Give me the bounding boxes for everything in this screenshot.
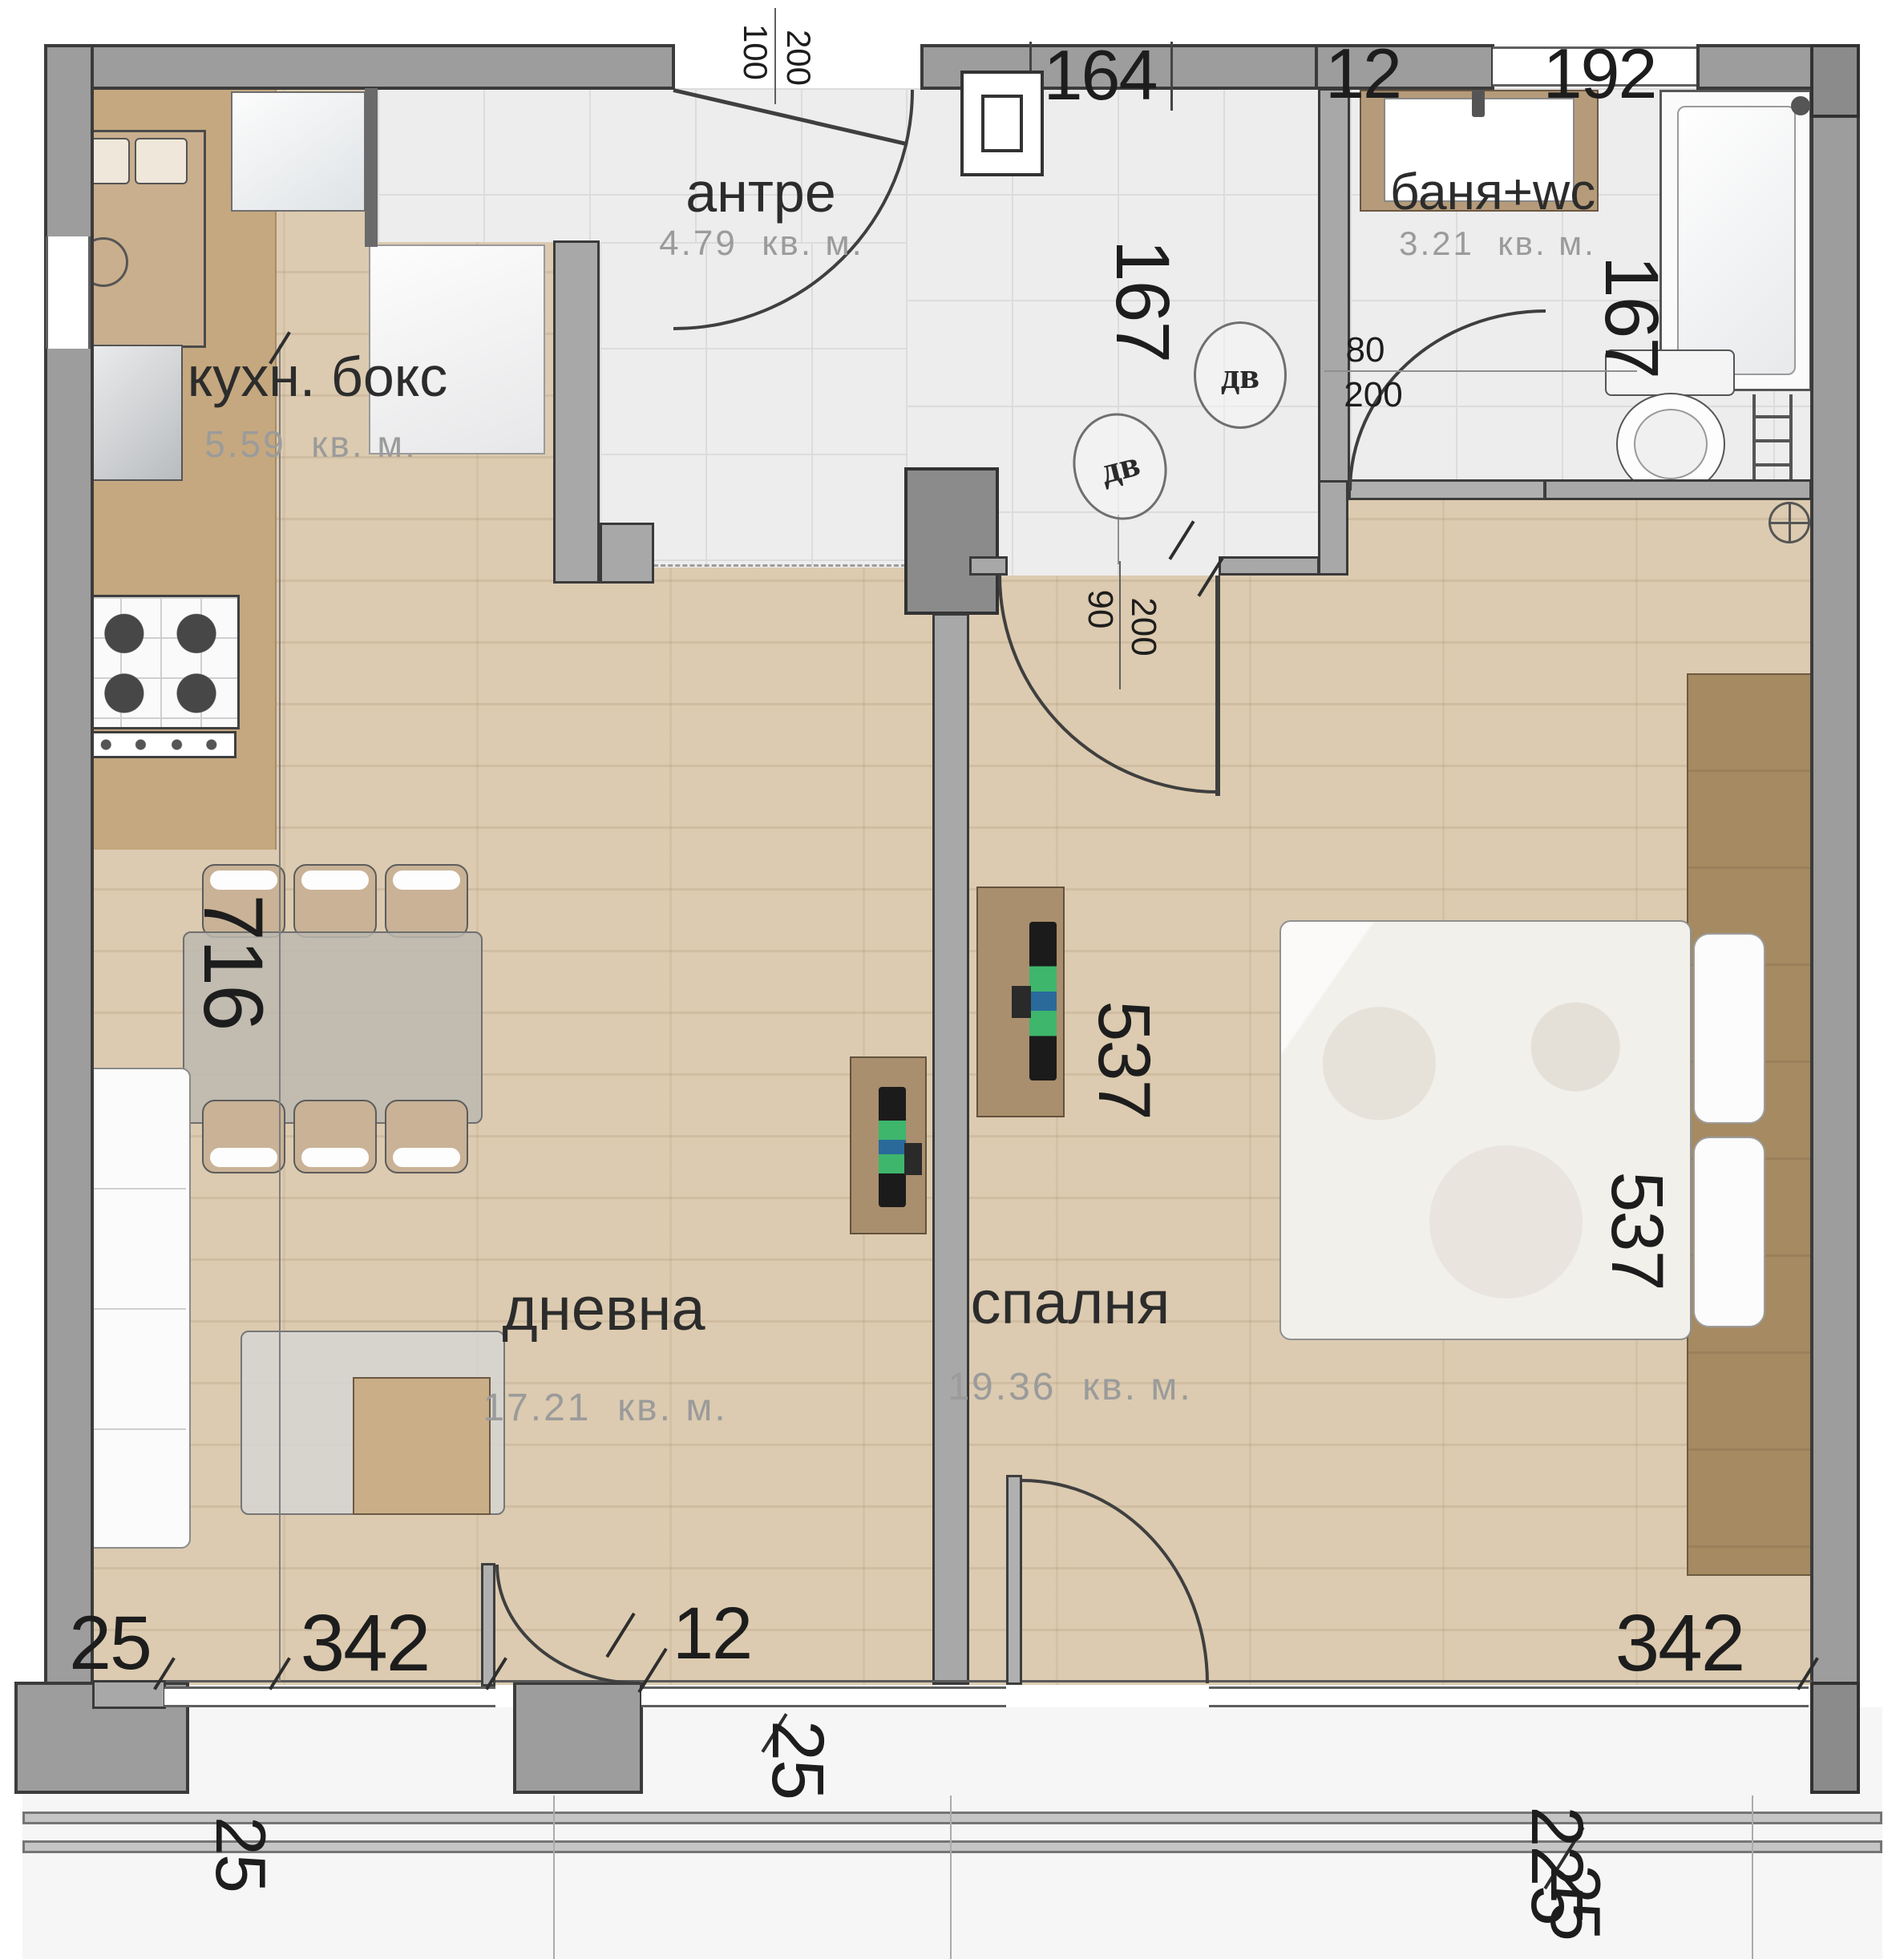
wall-bath-bottom (1544, 479, 1812, 500)
wall-kitchen-divider (365, 88, 378, 247)
dim-716: 716 (184, 842, 281, 1082)
dim-12-top: 12 (1291, 34, 1435, 114)
entry-door-height: 200 (750, 10, 847, 106)
area-value: 5.59 (204, 422, 286, 466)
leader-bedroom-door (1118, 515, 1119, 564)
door-label-text: дв (1221, 354, 1259, 397)
wall-top-left (44, 44, 675, 90)
fridge (231, 91, 366, 212)
tv-bedroom-mount (1012, 986, 1031, 1018)
bath-door-width: 80 (1317, 330, 1413, 370)
tv-living (879, 1087, 906, 1207)
bath-faucet (1472, 90, 1485, 117)
balcony-joint (1752, 1795, 1753, 1959)
dining-chair (293, 864, 377, 938)
area-unit: кв. м. (617, 1386, 728, 1430)
wall-bedroom-door-stub (969, 556, 1008, 576)
dim-342-living: 342 (220, 1599, 509, 1687)
area-unit: кв. м. (762, 224, 864, 264)
wall-corridor-bottom (1219, 556, 1320, 576)
bath-door-height: 200 (1317, 375, 1429, 415)
wall-corner-top-right (1810, 44, 1860, 118)
wardrobe-headboard-panel (1687, 673, 1812, 1576)
dim-537-left: 537 (1076, 947, 1172, 1172)
dim-25-left: 25 (30, 1599, 190, 1687)
dining-chair (385, 1100, 468, 1173)
area-unit: кв. м. (311, 422, 418, 466)
wall-right (1810, 44, 1860, 1793)
sofa-cushion-line (83, 1428, 186, 1430)
wall-corner-bottom-right (1810, 1682, 1860, 1794)
room-area-hall: 4.79 кв. м. (561, 220, 962, 267)
shower-head (1791, 96, 1810, 115)
dim-25-bottom-right: 25 (1531, 1830, 1619, 1959)
room-label-hall: антре (600, 160, 921, 224)
living-balcony-window (164, 1686, 495, 1707)
tile-wood-threshold (653, 564, 906, 567)
sofa-cushion-line (83, 1308, 186, 1310)
tv-living-mount (904, 1143, 922, 1175)
wall-hall-left (553, 240, 600, 584)
door-label-bath: дв (1194, 321, 1287, 429)
dim-167-hall: 167 (1098, 204, 1186, 397)
bedroom-door-height: 200 (1095, 579, 1191, 675)
dim-167-bath: 167 (1587, 220, 1676, 413)
balcony-pier-mid (513, 1682, 643, 1794)
tv-bedroom (1029, 922, 1057, 1080)
column (904, 467, 999, 615)
wall-living-bedroom (932, 613, 969, 1685)
dining-chair (202, 1100, 285, 1173)
area-value: 4.79 (659, 224, 738, 264)
dim-164-top: 164 (1004, 35, 1196, 115)
bedroom-balcony-door-leaf (1006, 1475, 1022, 1685)
room-label-living: дневна (403, 1274, 804, 1343)
hob-control-panel (81, 731, 236, 758)
dim-537-right: 537 (1589, 1118, 1685, 1343)
dim-25-bottom-left: 25 (196, 1782, 285, 1926)
floor-drain (1769, 502, 1810, 543)
wall-hall-left-foot (600, 523, 654, 584)
pillow (1693, 933, 1765, 1124)
bedroom-door-leaf (1215, 576, 1220, 796)
dining-chair (385, 864, 468, 938)
dim-12-mid: 12 (640, 1591, 784, 1676)
wall-bath-jog (1318, 479, 1348, 576)
wall-bath-left (1318, 88, 1350, 483)
bedroom-balcony-window-right (1209, 1686, 1809, 1707)
area-value: 17.21 (483, 1386, 591, 1430)
pillow (1693, 1137, 1765, 1327)
gas-hob (78, 595, 240, 729)
area-value: 19.36 (948, 1365, 1056, 1409)
balcony-joint (950, 1795, 952, 1959)
area-unit: кв. м. (1082, 1365, 1193, 1409)
kitchen-cabinet-module (135, 138, 188, 184)
room-label-bath: баня+wc (1284, 160, 1701, 223)
area-value: 3.21 (1399, 224, 1474, 263)
floor-plan: кухн. бокс 5.59 кв. м. антре 4.79 кв. м.… (0, 0, 1904, 1959)
dining-chair (293, 1100, 377, 1173)
toilet-bowl-inner (1634, 409, 1708, 479)
door-label-text: дв (1096, 441, 1144, 491)
room-area-bedroom: 19.36 кв. м. (870, 1363, 1271, 1411)
balcony-joint (553, 1795, 555, 1959)
room-label-kitchen: кухн. бокс (109, 345, 526, 409)
room-label-bedroom: спалня (870, 1268, 1271, 1337)
dim-342-bedroom: 342 (1535, 1599, 1824, 1687)
kitchen-window (46, 236, 91, 349)
room-area-living: 17.21 кв. м. (405, 1383, 806, 1432)
room-area-kitchen: 5.59 кв. м. (111, 420, 511, 468)
area-unit: кв. м. (1498, 224, 1596, 263)
dim-192-top: 192 (1503, 34, 1696, 114)
sofa-cushion-line (83, 1188, 186, 1190)
balcony-railing-outer (22, 1812, 1882, 1824)
dim-25-mid: 25 (754, 1687, 842, 1832)
